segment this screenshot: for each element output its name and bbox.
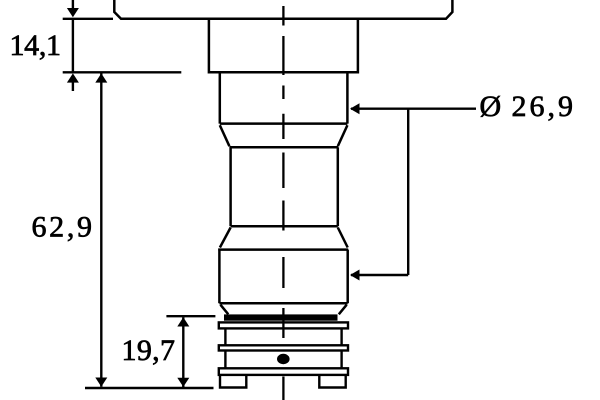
svg-text:14,1: 14,1 [10,29,62,62]
svg-text:26,9: 26,9 [512,90,574,123]
svg-text:62,9: 62,9 [32,211,93,244]
svg-text:19,7: 19,7 [122,334,176,367]
svg-text:Ø: Ø [480,90,502,123]
